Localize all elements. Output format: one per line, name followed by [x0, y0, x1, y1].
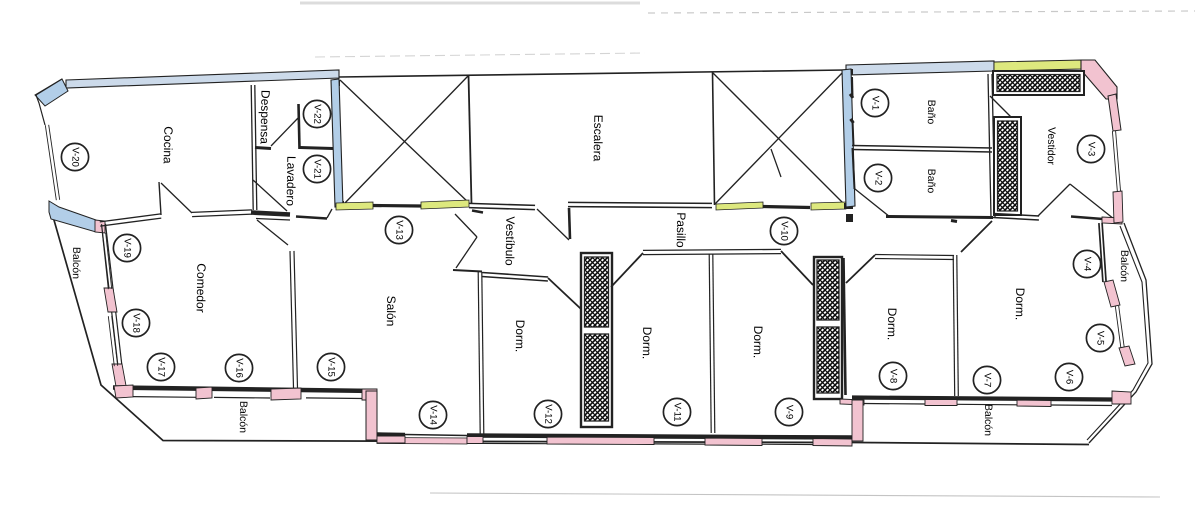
svg-text:Balcón: Balcón — [237, 401, 250, 433]
svg-text:V-11: V-11 — [671, 402, 682, 421]
svg-text:Cocina: Cocina — [161, 126, 176, 164]
svg-text:V-8: V-8 — [887, 369, 898, 384]
svg-text:V-15: V-15 — [325, 357, 336, 377]
svg-text:Balcón: Balcón — [1118, 250, 1131, 282]
svg-text:Dorm.: Dorm. — [640, 327, 655, 360]
svg-text:Salón: Salón — [384, 296, 399, 327]
svg-text:Balcón: Balcón — [982, 404, 995, 436]
svg-text:V-10: V-10 — [778, 221, 789, 241]
svg-text:V-6: V-6 — [1063, 370, 1074, 385]
svg-text:V-9: V-9 — [783, 405, 794, 420]
svg-text:V-5: V-5 — [1094, 331, 1105, 346]
svg-text:Dorm.: Dorm. — [885, 308, 900, 341]
svg-text:Escalera: Escalera — [591, 115, 606, 162]
svg-text:V-3: V-3 — [1085, 142, 1096, 157]
svg-text:Vestidor: Vestidor — [1045, 127, 1058, 166]
svg-text:Comedor: Comedor — [194, 263, 209, 313]
svg-text:V-18: V-18 — [130, 313, 141, 333]
svg-text:Baño: Baño — [925, 100, 937, 125]
svg-text:V-7: V-7 — [981, 373, 992, 388]
svg-text:Dorm.: Dorm. — [1013, 288, 1028, 321]
svg-text:V-1: V-1 — [869, 96, 880, 111]
svg-text:V-2: V-2 — [872, 171, 883, 186]
svg-text:V-21: V-21 — [311, 159, 322, 179]
svg-text:V-22: V-22 — [311, 104, 322, 124]
svg-text:V-4: V-4 — [1081, 257, 1092, 272]
svg-text:V-12: V-12 — [542, 404, 553, 424]
svg-text:V-20: V-20 — [69, 147, 80, 167]
svg-text:V-13: V-13 — [393, 220, 404, 240]
svg-text:Despensa: Despensa — [258, 90, 273, 145]
svg-text:Baño: Baño — [925, 169, 937, 194]
svg-text:Dorm.: Dorm. — [751, 326, 766, 359]
svg-text:Lavadero: Lavadero — [284, 156, 299, 207]
svg-text:V-19: V-19 — [121, 238, 132, 258]
svg-text:V-14: V-14 — [427, 405, 438, 426]
svg-text:V-16: V-16 — [233, 358, 244, 378]
svg-text:Vestíbulo: Vestíbulo — [503, 216, 518, 266]
svg-text:Pasillo: Pasillo — [674, 212, 689, 248]
svg-text:Balcón: Balcón — [70, 247, 83, 279]
svg-text:V-17: V-17 — [155, 357, 166, 377]
svg-text:Dorm.: Dorm. — [513, 320, 528, 353]
